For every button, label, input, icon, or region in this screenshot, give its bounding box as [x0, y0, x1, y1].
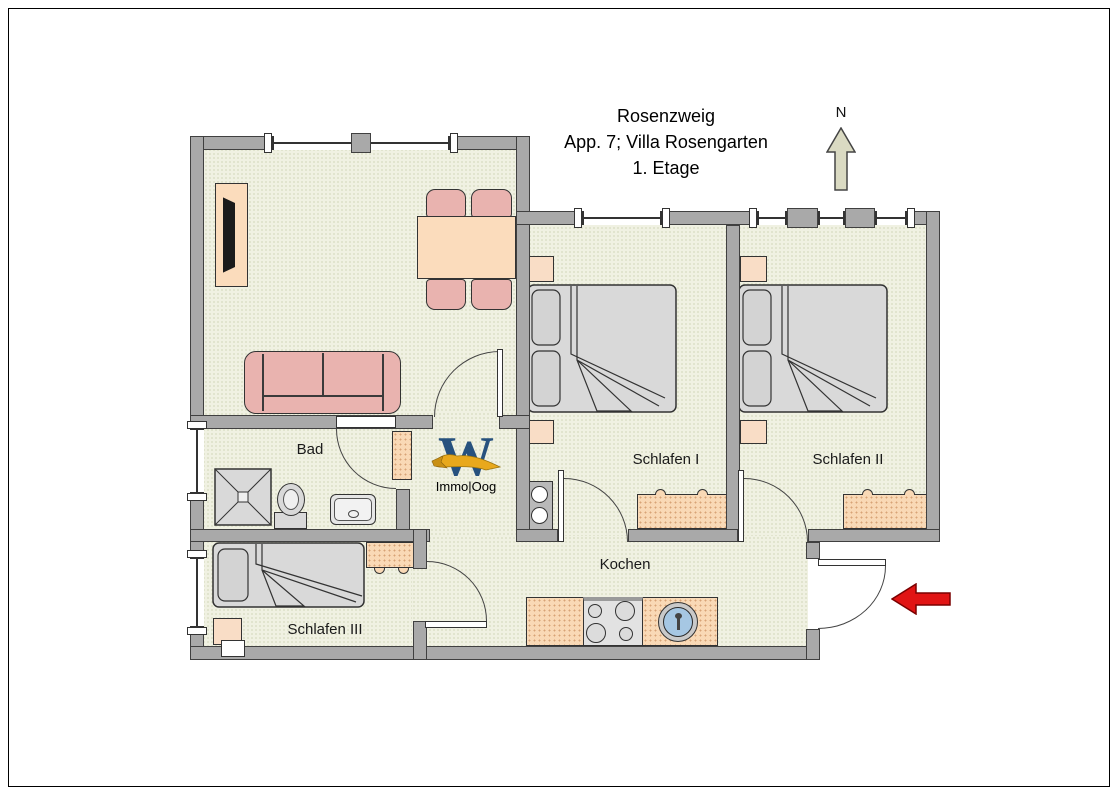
wall: [808, 529, 940, 542]
window-mullion: [845, 208, 875, 228]
window-cap: [749, 208, 757, 228]
wall: [190, 415, 433, 429]
window-cap: [187, 627, 207, 635]
wall: [499, 415, 530, 429]
stove-burner: [586, 623, 606, 643]
toilet-bowl-inner: [283, 489, 299, 510]
dining-table: [417, 216, 516, 279]
window-cap: [907, 208, 915, 228]
plan-title: Rosenzweig App. 7; Villa Rosengarten 1. …: [456, 103, 876, 181]
door-leaf-bad: [336, 416, 396, 428]
kitchen-faucet: [677, 618, 680, 630]
wall: [413, 529, 427, 569]
bed-schlafen2: [738, 284, 888, 413]
water-heater-dial: [531, 507, 548, 524]
wall: [516, 136, 530, 542]
north-label: N: [826, 104, 856, 121]
room-label-schlafen2: Schlafen II: [780, 451, 916, 468]
door-leaf-schlafen3: [425, 621, 487, 628]
nightstand: [740, 256, 767, 282]
shower: [214, 468, 272, 526]
wall: [628, 529, 738, 542]
window-cap: [187, 550, 207, 558]
dresser-handle: [862, 489, 873, 495]
window-schlafen2: [818, 211, 845, 225]
logo: W Immo|Oog: [429, 429, 503, 494]
window-schlafen3-bottom: [221, 640, 245, 657]
nightstand: [528, 256, 554, 282]
wall: [806, 542, 820, 559]
kitchen-faucet-head: [675, 613, 682, 619]
water-heater-dial: [531, 486, 548, 503]
bed-schlafen1: [527, 284, 677, 413]
window-cap: [662, 208, 670, 228]
room-label-bad: Bad: [265, 441, 355, 458]
floor-plan-canvas: Bad Schlafen I Schlafen II Schlafen III …: [0, 0, 1118, 794]
dresser-handle: [655, 489, 666, 495]
window-cap: [574, 208, 582, 228]
wall: [806, 629, 820, 660]
wall: [926, 211, 940, 542]
wall: [190, 529, 430, 542]
north-arrow-icon: [826, 127, 856, 191]
window-mullion: [351, 133, 371, 153]
title-line-2: App. 7; Villa Rosengarten: [456, 129, 876, 155]
window-cap: [187, 493, 207, 501]
dresser-handle: [904, 489, 915, 495]
dining-chair: [471, 279, 512, 310]
dresser-handle: [697, 489, 708, 495]
window-schlafen1: [582, 211, 662, 225]
stove-burner: [588, 604, 602, 618]
sofa-armrest-line: [262, 354, 264, 411]
kitchen-counter-left: [526, 597, 584, 646]
wall: [516, 529, 558, 542]
stove-burner: [615, 601, 635, 621]
room-label-schlafen3: Schlafen III: [250, 621, 400, 638]
window-bad: [190, 428, 204, 494]
dining-chair: [471, 189, 512, 218]
window-schlafen3-left: [190, 557, 204, 628]
nightstand: [740, 420, 767, 444]
title-line-1: Rosenzweig: [456, 103, 876, 129]
window-schlafen2: [757, 211, 787, 225]
sofa-armrest-line: [382, 354, 384, 411]
window-mullion: [787, 208, 818, 228]
dining-chair: [426, 279, 466, 310]
door-leaf-living: [497, 349, 503, 417]
door-arc-entrance: [818, 566, 886, 629]
entrance-arrow-icon: [891, 583, 951, 615]
title-line-3: 1. Etage: [456, 155, 876, 181]
window-schlafen2: [875, 211, 907, 225]
nightstand: [528, 420, 554, 444]
dresser-schlafen2: [843, 494, 932, 529]
dining-chair: [426, 189, 466, 218]
bed-schlafen3: [212, 542, 365, 608]
tv: [223, 195, 235, 275]
stove-burner: [619, 627, 633, 641]
window-cap: [264, 133, 272, 153]
dresser-schlafen3: [366, 542, 414, 568]
room-label-schlafen1: Schlafen I: [600, 451, 732, 468]
sink-drain: [348, 510, 359, 518]
wall: [190, 646, 820, 660]
sofa-cushion-divider: [322, 353, 324, 395]
door-leaf-schlafen2: [738, 470, 744, 542]
logo-fish-icon: [430, 450, 502, 476]
door-leaf-entrance: [818, 559, 886, 566]
window-cap: [187, 421, 207, 429]
sofa-back-line: [262, 395, 383, 397]
room-label-kochen: Kochen: [563, 556, 687, 573]
door-leaf-schlafen1: [558, 470, 564, 542]
logo-text: Immo|Oog: [429, 479, 503, 494]
dresser-schlafen1: [637, 494, 727, 529]
